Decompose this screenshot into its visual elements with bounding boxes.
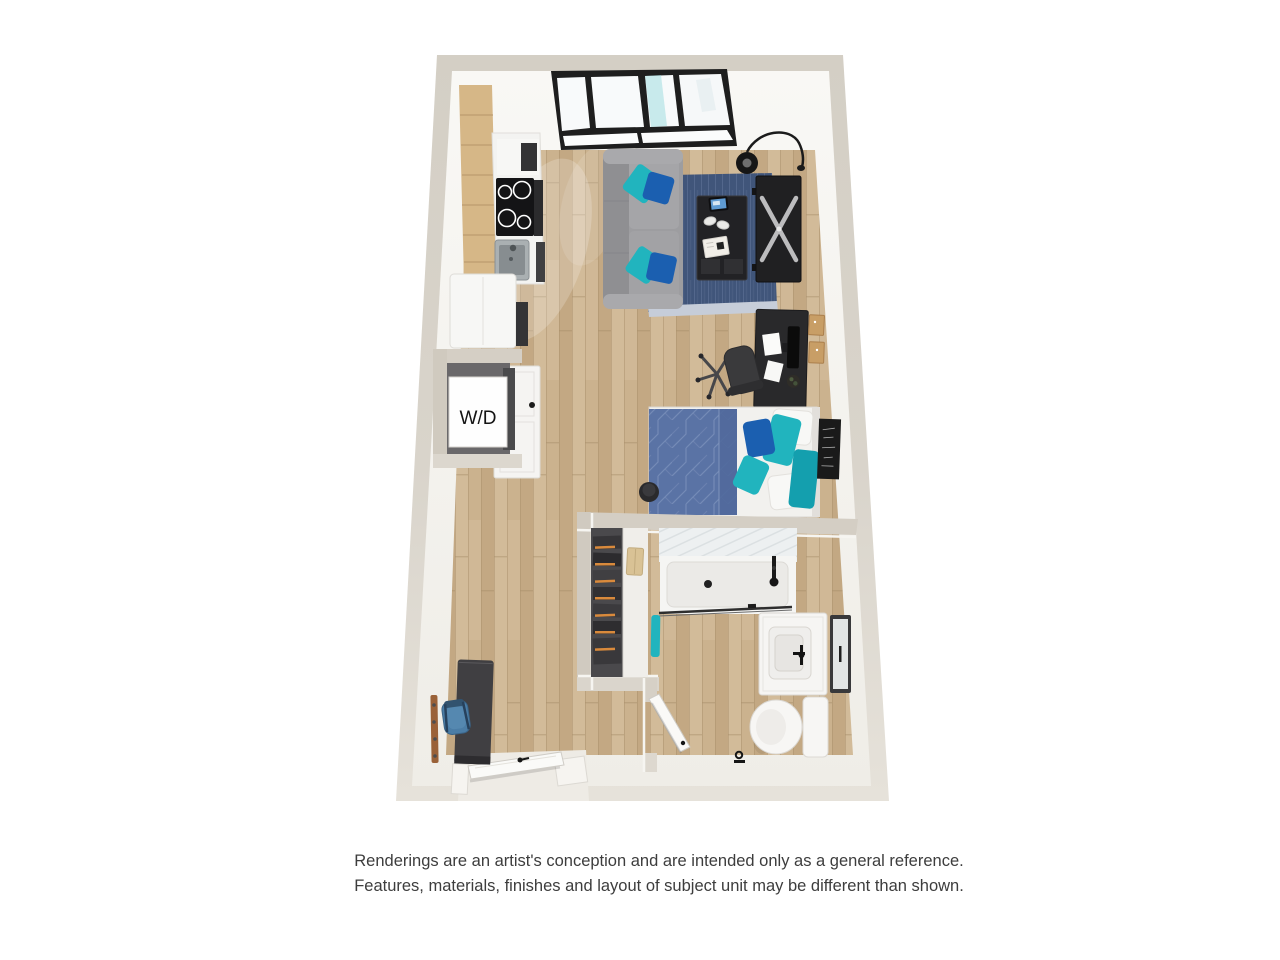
window [551,69,737,150]
shower-door-handle [748,604,756,608]
shower-tray-basin [667,562,788,607]
hanging-clothes [593,536,622,665]
bathroom-door-handle [681,741,685,745]
shower-drain [704,580,712,588]
coat-hook-2 [432,720,436,724]
sleeping-area [639,407,841,517]
duvet-fold [719,409,737,515]
mirror-reflection [839,646,842,662]
coat-hook-4 [433,754,437,758]
bench-front [454,755,490,764]
toilet-seat [756,709,786,745]
coat-hook [432,703,436,707]
cork-pin-2 [816,349,818,351]
washer-dryer-closet: W/D [433,349,522,468]
disclaimer-line-1: Renderings are an artist's conception an… [38,849,1280,874]
toilet-tank [803,697,828,757]
paper [762,333,782,356]
cork-pin [814,321,816,323]
desk-top [754,309,809,408]
oven-side [534,180,543,236]
door-jamb [451,764,469,795]
sink-faucet [510,245,516,251]
closet-left-wall [577,512,591,691]
walk-in-closet [591,528,648,677]
cork-board-2 [809,342,825,364]
dishwasher-side [536,242,545,282]
coat-hook-3 [433,737,437,741]
wall-art [817,419,841,480]
microwave-door [521,143,537,171]
coffee-table-drawer [701,259,720,274]
sink-drain [509,257,513,261]
nightstand-stool-top [643,484,656,497]
sofa [603,149,683,309]
oven-front [516,302,528,346]
coffee-table [697,196,747,280]
tv-stand-hub [777,227,782,232]
tv-console [752,176,801,282]
disclaimer-line-2: Features, materials, finishes and layout… [38,874,1280,899]
page: W/D [0,0,1280,960]
disclaimer: Renderings are an artist's conception an… [0,849,1280,898]
wd-label: W/D [460,408,497,429]
tablet [708,196,728,212]
desk [754,309,809,408]
window-pane [591,76,644,128]
chair-wheel [696,378,701,383]
chair-wheel [707,395,712,400]
sofa-back [603,149,629,309]
monitor [787,326,800,368]
monitor-stand [782,343,787,352]
mirror [830,615,851,693]
coat-rack [430,695,438,763]
sofa-arm-bottom [603,294,683,309]
vanity-faucet-base [799,652,805,658]
book [703,236,730,258]
bathroom-vanity [759,613,827,695]
floorplan-rendering: W/D [0,0,1280,960]
pantry-handle [529,402,535,408]
lamp-shade-center [743,159,752,168]
chair-wheel [699,354,704,359]
throw-pillow-blue-2 [645,252,677,285]
backpack [441,698,471,735]
window-pane [557,77,590,131]
towel [651,615,661,657]
wd-wall-left [433,349,447,468]
lamp-base [797,165,805,171]
coffee-table-drawer-2 [724,259,743,274]
wd-wall-bottom [433,454,522,468]
storage-box [626,548,643,576]
sofa-arm-top [603,149,683,164]
cork-board [808,315,824,336]
toilet [750,697,828,757]
